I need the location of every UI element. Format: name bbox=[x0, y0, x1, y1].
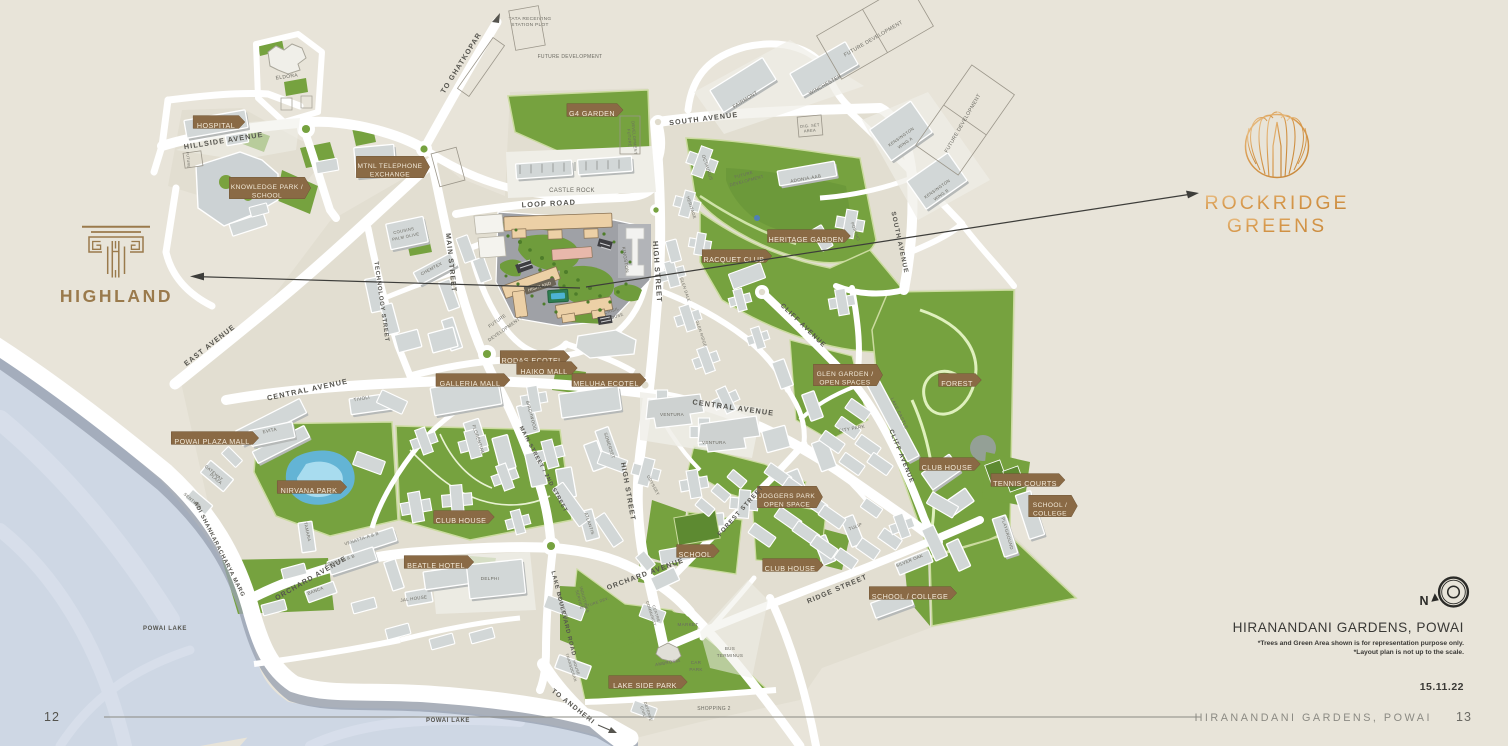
svg-text:MELUHA ECOTEL: MELUHA ECOTEL bbox=[573, 379, 639, 388]
svg-text:GREENS: GREENS bbox=[1227, 215, 1327, 237]
svg-text:RACQUET CLUB: RACQUET CLUB bbox=[704, 255, 765, 264]
svg-text:DELPHI: DELPHI bbox=[481, 576, 499, 581]
svg-text:ROCKRIDGE: ROCKRIDGE bbox=[1204, 192, 1349, 214]
svg-text:HIRANANDANI GARDENS, POWAI: HIRANANDANI GARDENS, POWAI bbox=[1195, 712, 1432, 724]
svg-text:SCHOOL: SCHOOL bbox=[252, 193, 282, 200]
svg-text:CLUB HOUSE: CLUB HOUSE bbox=[922, 463, 973, 472]
svg-text:EXCHANGE: EXCHANGE bbox=[370, 172, 410, 179]
svg-text:OPEN SPACE: OPEN SPACE bbox=[764, 502, 811, 509]
svg-text:JOGGERS PARK: JOGGERS PARK bbox=[759, 493, 816, 500]
svg-text:SCHOOL / COLLEGE: SCHOOL / COLLEGE bbox=[872, 592, 948, 601]
svg-text:CASTLE ROCK: CASTLE ROCK bbox=[549, 188, 595, 194]
svg-text:HIGHLAND: HIGHLAND bbox=[60, 286, 173, 306]
svg-text:TERMINUS: TERMINUS bbox=[717, 653, 743, 658]
svg-text:G4 GARDEN: G4 GARDEN bbox=[569, 109, 615, 118]
svg-text:TENNIS COURTS: TENNIS COURTS bbox=[993, 479, 1057, 488]
svg-text:GLEN GARDEN /: GLEN GARDEN / bbox=[817, 371, 874, 378]
svg-text:HOSPITAL: HOSPITAL bbox=[197, 121, 235, 130]
svg-text:POWAI LAKE: POWAI LAKE bbox=[143, 626, 187, 632]
svg-text:LAKE SIDE PARK: LAKE SIDE PARK bbox=[613, 681, 677, 690]
svg-text:HAIKO MALL: HAIKO MALL bbox=[520, 367, 567, 376]
svg-text:KNOWLEDGE PARK /: KNOWLEDGE PARK / bbox=[231, 184, 303, 191]
svg-text:*Layout plan is not up to the: *Layout plan is not up to the scale. bbox=[1354, 649, 1464, 656]
svg-text:13: 13 bbox=[1456, 710, 1472, 724]
svg-text:OPEN SPACES: OPEN SPACES bbox=[819, 380, 870, 387]
svg-text:AREA: AREA bbox=[804, 127, 817, 133]
svg-text:HERITAGE GARDEN: HERITAGE GARDEN bbox=[769, 235, 844, 244]
svg-text:SHOPPING 2: SHOPPING 2 bbox=[697, 706, 731, 712]
svg-text:15.11.22: 15.11.22 bbox=[1420, 681, 1464, 693]
svg-text:CAR: CAR bbox=[691, 660, 702, 665]
svg-text:VENTURA: VENTURA bbox=[702, 440, 727, 445]
svg-text:NIRVANA PARK: NIRVANA PARK bbox=[281, 486, 338, 495]
svg-text:POWAI LAKE: POWAI LAKE bbox=[426, 718, 470, 724]
svg-text:VENTURA: VENTURA bbox=[660, 412, 685, 417]
svg-text:*Trees and Green Area shown is: *Trees and Green Area shown is for repre… bbox=[1258, 640, 1464, 647]
svg-text:POWAI PLAZA MALL: POWAI PLAZA MALL bbox=[174, 437, 249, 446]
svg-text:COLLEGE: COLLEGE bbox=[1033, 511, 1067, 518]
svg-text:MTNL TELEPHONE: MTNL TELEPHONE bbox=[358, 163, 423, 170]
svg-text:SCHOOL: SCHOOL bbox=[679, 550, 712, 559]
svg-text:FOREST: FOREST bbox=[941, 379, 973, 388]
svg-text:HIRANANDANI GARDENS, POWAI: HIRANANDANI GARDENS, POWAI bbox=[1233, 620, 1464, 635]
svg-text:SCHOOL /: SCHOOL / bbox=[1033, 502, 1067, 509]
svg-text:GALLERIA MALL: GALLERIA MALL bbox=[440, 379, 501, 388]
svg-text:CLUB HOUSE: CLUB HOUSE bbox=[765, 564, 816, 573]
svg-text:BEATLE HOTEL: BEATLE HOTEL bbox=[407, 561, 465, 570]
svg-text:PARK: PARK bbox=[689, 667, 703, 672]
svg-text:BUS: BUS bbox=[725, 646, 735, 651]
svg-text:N: N bbox=[1419, 594, 1428, 608]
svg-text:TATA RECEIVING: TATA RECEIVING bbox=[509, 16, 552, 22]
svg-text:MARKET: MARKET bbox=[678, 622, 699, 627]
svg-text:STATION PLOT: STATION PLOT bbox=[511, 22, 549, 28]
svg-text:FUTURE DEVELOPMENT: FUTURE DEVELOPMENT bbox=[538, 54, 603, 60]
svg-text:CLUB HOUSE: CLUB HOUSE bbox=[436, 516, 487, 525]
svg-text:12: 12 bbox=[44, 710, 60, 724]
